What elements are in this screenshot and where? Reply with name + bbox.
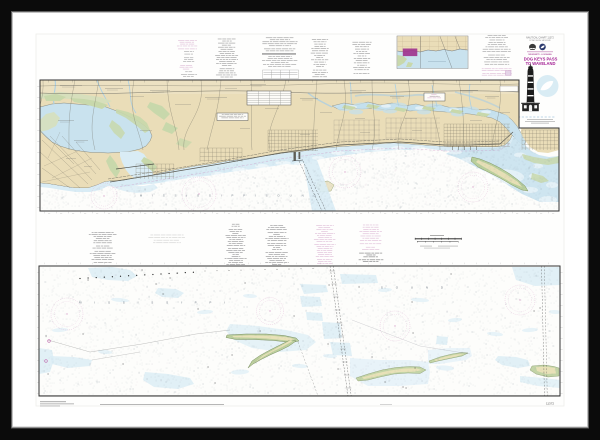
svg-text:11372: 11372 bbox=[546, 402, 554, 406]
svg-text:S O U N D: S O U N D bbox=[381, 286, 449, 290]
svg-text:NAUTICAL CHART 11372: NAUTICAL CHART 11372 bbox=[526, 36, 554, 39]
svg-text:M I S S I S S I P P I S O: M I S S I S S I P P I S O U N D bbox=[140, 194, 321, 198]
svg-text:TO WAVELAND: TO WAVELAND bbox=[526, 61, 556, 66]
svg-text:M I S S I S S I P P I: M I S S I S S I P P I bbox=[79, 301, 231, 305]
